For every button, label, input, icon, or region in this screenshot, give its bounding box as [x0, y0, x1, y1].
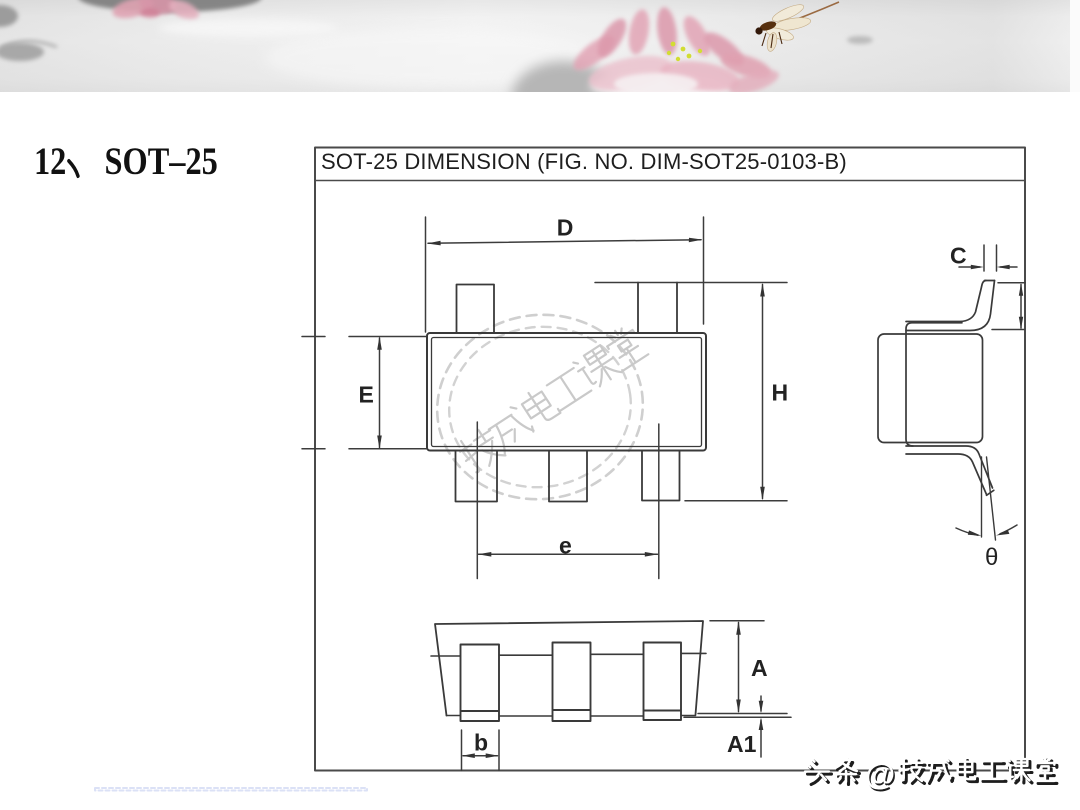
svg-text:SOT–25: SOT–25 [105, 139, 218, 183]
svg-text:A1: A1 [727, 731, 757, 757]
svg-text:b: b [474, 730, 488, 756]
svg-text:E: E [359, 382, 374, 408]
svg-text:θ: θ [985, 544, 998, 571]
svg-text:D: D [557, 215, 574, 241]
svg-text:C: C [950, 243, 967, 269]
svg-text:SOT-25 DIMENSION (FIG. NO. DIM: SOT-25 DIMENSION (FIG. NO. DIM-SOT25-010… [321, 149, 847, 174]
svg-text:A: A [751, 655, 768, 681]
svg-text:@: @ [865, 757, 895, 792]
svg-text:e: e [559, 533, 572, 559]
svg-text:H: H [772, 380, 789, 406]
svg-text:12: 12 [34, 139, 66, 183]
